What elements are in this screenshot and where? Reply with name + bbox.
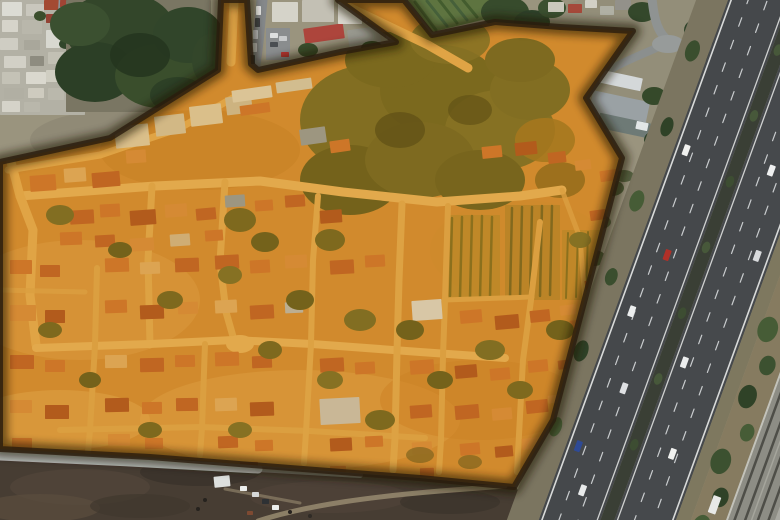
satellite-canvas [0, 0, 780, 520]
satellite-map-view [0, 0, 780, 520]
